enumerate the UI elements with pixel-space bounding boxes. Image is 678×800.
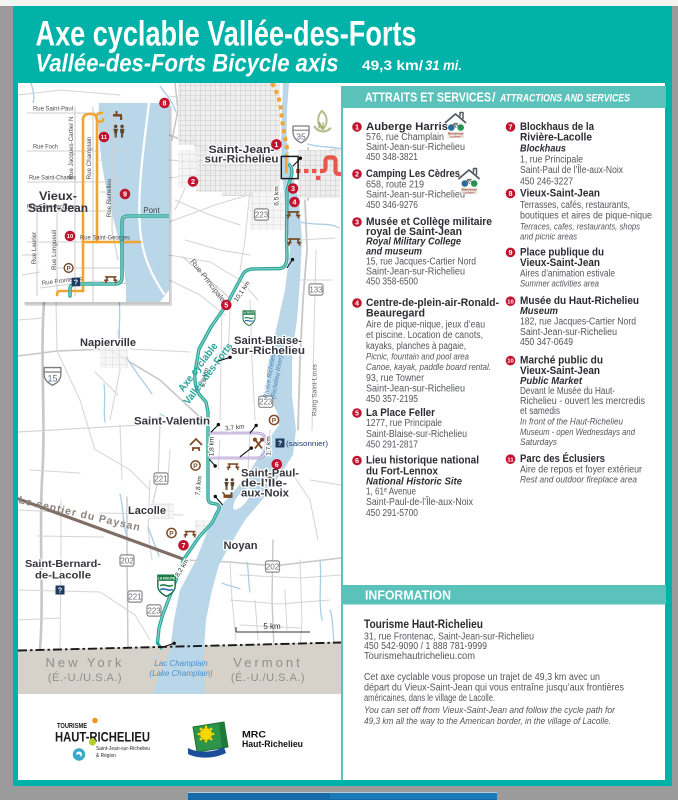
svg-text:7: 7 [509, 122, 513, 131]
svg-text:Rue Principale: Rue Principale [188, 257, 227, 304]
svg-text:?: ? [74, 279, 78, 286]
svg-text:10: 10 [67, 234, 73, 240]
svg-text:11: 11 [507, 457, 514, 463]
svg-text:450 347-0649: 450 347-0649 [520, 337, 573, 348]
svg-text:35: 35 [296, 131, 306, 141]
svg-text:Axe cyclable Vallée-des-Forts: Axe cyclable Vallée-des-Forts [36, 15, 417, 54]
svg-text:You can set off from Vieux-Sai: You can set off from Vieux-Saint-Jean an… [364, 705, 616, 716]
svg-text:1,7 km: 1,7 km [266, 436, 273, 456]
svg-text:INFORMATION: INFORMATION [365, 589, 451, 603]
svg-text:Rue Richelieu: Rue Richelieu [106, 178, 113, 217]
svg-text:2: 2 [191, 177, 195, 186]
svg-text:Saint-Blaise-sur-Richelieu: Saint-Blaise-sur-Richelieu [366, 429, 467, 440]
svg-text:Vieux-Saint-Jean: Vieux-Saint-Jean [520, 188, 600, 200]
svg-text:Saint-Paul de l’Île-aux-Noix: Saint-Paul de l’Île-aux-Noix [520, 163, 623, 176]
svg-text:Rang Saint-Louis: Rang Saint-Louis [313, 364, 319, 416]
svg-text:Blockhaus: Blockhaus [520, 143, 566, 155]
svg-text:Parc des Éclusiers: Parc des Éclusiers [520, 452, 605, 465]
svg-text:Saint-Bernard-: Saint-Bernard- [25, 558, 102, 570]
svg-text:Rue Laurier: Rue Laurier [31, 232, 38, 264]
svg-text:10,1 km: 10,1 km [233, 280, 252, 303]
svg-text:Rue Saint-Paul: Rue Saint-Paul [33, 106, 73, 113]
svg-text:La Place Feller: La Place Feller [366, 407, 436, 419]
svg-text:221: 221 [128, 592, 142, 601]
svg-text:Rue Champlain: Rue Champlain [86, 136, 93, 179]
svg-text:31 mi.: 31 mi. [425, 58, 462, 73]
svg-text:Vieux-: Vieux- [39, 191, 77, 203]
svg-text:Tourismehautrichelieu.com: Tourismehautrichelieu.com [364, 651, 475, 662]
svg-text:10: 10 [507, 359, 513, 365]
svg-text:9: 9 [509, 248, 513, 257]
svg-text:4: 4 [355, 299, 359, 308]
svg-text:Cet axe cyclable vous propose: Cet axe cyclable vous propose un trajet … [364, 672, 600, 683]
svg-text:223: 223 [147, 606, 161, 615]
svg-text:3,7 km: 3,7 km [225, 424, 245, 433]
svg-text:6,5 km: 6,5 km [274, 186, 281, 206]
svg-text:93, rue Towner: 93, rue Towner [366, 373, 425, 384]
svg-text:sur-Richelieu: sur-Richelieu [231, 345, 305, 357]
svg-text:5: 5 [224, 301, 228, 310]
svg-text:Vermont: Vermont [233, 655, 302, 670]
svg-text:In front of the Haut-Richelieu: In front of the Haut-Richelieu [520, 416, 624, 427]
svg-text:Beauregard: Beauregard [366, 308, 425, 320]
svg-text:P: P [67, 265, 71, 272]
svg-text:223: 223 [255, 210, 269, 219]
svg-text:Tourisme Haut-Richelieu: Tourisme Haut-Richelieu [364, 619, 483, 631]
svg-text:450 348-3821: 450 348-3821 [366, 152, 418, 163]
svg-text:11: 11 [101, 135, 108, 141]
svg-text:450 358-6500: 450 358-6500 [366, 277, 418, 288]
svg-text:15: 15 [48, 374, 58, 384]
svg-text:Rue Foch: Rue Foch [33, 144, 59, 151]
svg-text:LA ROUTE: LA ROUTE [243, 312, 256, 315]
svg-text:Summer activities area: Summer activities area [520, 279, 599, 290]
svg-text:P: P [272, 417, 277, 424]
svg-text:Vallée-des-Forts Bicycle axis: Vallée-des-Forts Bicycle axis [36, 50, 339, 78]
svg-text:(É.-U./U.S.A.): (É.-U./U.S.A.) [48, 671, 122, 684]
svg-text:N: N [318, 120, 324, 130]
svg-text:et piscine. Location de canots: et piscine. Location de canots, [366, 330, 483, 341]
svg-text:3: 3 [291, 184, 295, 193]
svg-text:1, rue Principale: 1, rue Principale [520, 154, 583, 165]
svg-text:Haut-Richelieu: Haut-Richelieu [242, 739, 303, 750]
svg-text:Vieux-Saint-Jean: Vieux-Saint-Jean [520, 257, 600, 269]
svg-text:Pont: Pont [143, 206, 160, 215]
svg-text:Museum: Museum [520, 305, 558, 317]
svg-text:aux-Noix: aux-Noix [241, 488, 290, 500]
svg-text:9: 9 [123, 190, 127, 199]
svg-text:6: 6 [355, 456, 359, 465]
svg-text:450 246-3227: 450 246-3227 [520, 176, 573, 187]
svg-text:boutiques et aires de pique-ni: boutiques et aires de pique-nique [520, 211, 652, 222]
svg-text:Saint-Jean-sur-Richelieu: Saint-Jean-sur-Richelieu [96, 746, 150, 752]
svg-text:7,8 km: 7,8 km [194, 476, 203, 496]
svg-text:450 357-2195: 450 357-2195 [366, 394, 418, 405]
svg-text:Camping Les Cèdres: Camping Les Cèdres [366, 168, 460, 180]
svg-text:Picnic, fountain and pool area: Picnic, fountain and pool area [366, 351, 469, 362]
svg-text:(É.-U./U.S.A.): (É.-U./U.S.A.) [231, 671, 305, 684]
svg-text:Saint-Paul-de-l’Île-aux-Noix: Saint-Paul-de-l’Île-aux-Noix [366, 495, 473, 508]
svg-text:202: 202 [120, 556, 134, 565]
svg-text:P: P [193, 463, 198, 470]
svg-text:49,3 km all the way to the Ame: 49,3 km all the way to the American bord… [364, 716, 611, 727]
svg-text:Noyan: Noyan [224, 540, 258, 552]
svg-text:& Région: & Région [96, 753, 116, 759]
svg-text:Terrasses, cafés, restaurants,: Terrasses, cafés, restaurants, [520, 200, 630, 211]
svg-text:?: ? [278, 439, 283, 448]
svg-text:3: 3 [355, 218, 359, 227]
svg-text:1,8 km: 1,8 km [209, 437, 216, 457]
svg-text:ATTRAITS ET SERVICES: ATTRAITS ET SERVICES [365, 91, 491, 105]
svg-text:1277, rue Principale: 1277, rue Principale [366, 418, 442, 429]
svg-text:Lacolle: Lacolle [128, 505, 166, 517]
svg-text:Rest and outdoor fireplace are: Rest and outdoor fireplace area [520, 474, 637, 485]
svg-text:/: / [492, 91, 496, 105]
svg-text:?: ? [58, 586, 63, 595]
svg-text:5 km: 5 km [263, 622, 281, 631]
svg-text:LA ROUTE: LA ROUTE [158, 576, 176, 580]
svg-text:450 291-5700: 450 291-5700 [366, 508, 418, 519]
svg-text:HAUT-RICHELIEU: HAUT-RICHELIEU [55, 730, 150, 745]
svg-text:Saint-Jean: Saint-Jean [28, 203, 88, 215]
svg-text:Saturdays: Saturdays [520, 437, 557, 448]
svg-text:4: 4 [293, 198, 297, 207]
svg-text:cyclistes!: cyclistes! [450, 135, 462, 139]
svg-text:(saisonnier): (saisonnier) [286, 439, 329, 448]
svg-text:P: P [169, 530, 174, 537]
svg-text:and picnic areas: and picnic areas [520, 232, 577, 243]
svg-text:5: 5 [355, 409, 359, 418]
svg-text:Rivière-Lacolle: Rivière-Lacolle [520, 131, 592, 143]
svg-text:10: 10 [507, 299, 513, 305]
svg-text:sur-Richelieu: sur-Richelieu [205, 154, 279, 166]
svg-text:New York: New York [46, 655, 125, 670]
svg-text:Aire de pique-nique, jeux d’ea: Aire de pique-nique, jeux d’eau [366, 319, 485, 330]
svg-text:221: 221 [154, 474, 168, 483]
svg-text:Canoe, kayak, paddle board ren: Canoe, kayak, paddle board rental. [366, 362, 491, 373]
svg-text:Rue Longueuil: Rue Longueuil [51, 230, 58, 270]
svg-text:1, 61ᵉ Avenue: 1, 61ᵉ Avenue [366, 486, 416, 497]
svg-text:américaines, dans le village d: américaines, dans le village de Lacolle. [364, 693, 495, 704]
svg-text:de-Lacolle: de-Lacolle [35, 570, 91, 582]
svg-text:202: 202 [266, 562, 280, 571]
svg-text:1: 1 [355, 122, 359, 131]
svg-text:cyclistes!: cyclistes! [464, 191, 476, 195]
svg-text:2: 2 [355, 170, 359, 179]
svg-text:49,3 km/: 49,3 km/ [362, 58, 423, 73]
svg-text:7: 7 [182, 541, 186, 550]
svg-text:450 346-9276: 450 346-9276 [366, 200, 418, 211]
svg-text:1: 1 [274, 140, 278, 149]
svg-text:Lac Champlain: Lac Champlain [154, 659, 208, 668]
svg-text:450 291-2817: 450 291-2817 [366, 439, 418, 450]
svg-text:ATTRACTIONS AND SERVICES: ATTRACTIONS AND SERVICES [499, 93, 630, 105]
svg-text:8: 8 [509, 189, 513, 198]
svg-text:Public Market: Public Market [520, 375, 582, 387]
svg-text:8: 8 [163, 99, 167, 108]
svg-text:(Lake Champlain): (Lake Champlain) [149, 669, 212, 678]
svg-text:133: 133 [309, 285, 323, 294]
svg-text:Rue Saint-Georges: Rue Saint-Georges [80, 235, 130, 242]
svg-text:6: 6 [275, 460, 279, 469]
svg-text:Napierville: Napierville [80, 337, 136, 349]
svg-text:Saint-Valentin: Saint-Valentin [134, 416, 210, 428]
svg-text:Rue Jacques-Cartier N: Rue Jacques-Cartier N [68, 117, 75, 180]
